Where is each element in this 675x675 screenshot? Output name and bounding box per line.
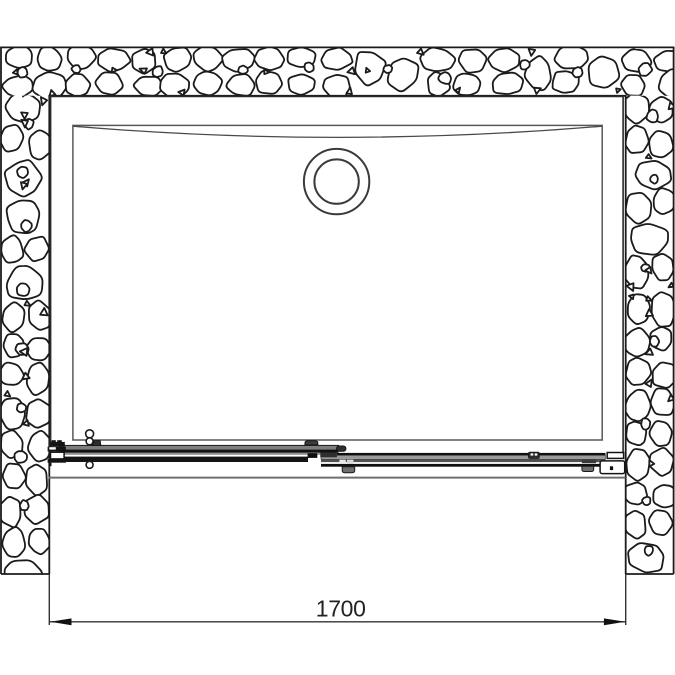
svg-text:1700: 1700 <box>316 595 366 621</box>
